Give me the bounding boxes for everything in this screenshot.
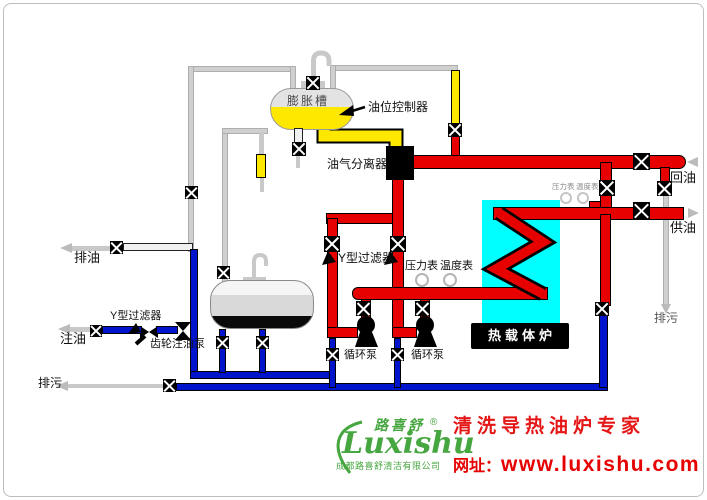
slogan: 清洗导热油炉专家	[453, 417, 645, 438]
pipe-discharge-header	[352, 287, 548, 300]
website-row: 网址： www.luxishu.com	[453, 452, 700, 477]
valve-furnace-drain	[595, 302, 609, 316]
valve-supply	[633, 202, 650, 219]
valve-y-filter-1	[324, 236, 340, 252]
pipe-expansion-riser-yellow	[451, 70, 460, 127]
pipe-supply-tee-cap	[589, 201, 601, 208]
valve-vent	[306, 76, 320, 90]
pipe-drain-oil	[123, 243, 193, 251]
valve-pump2-drain	[391, 348, 404, 361]
circulation-pump1-label: 循环泵	[344, 349, 377, 361]
sight-glass	[256, 154, 266, 178]
supply-oil-label: 供油	[670, 221, 696, 235]
temperature-gauge-small-icon	[577, 192, 589, 204]
pipe-pump2-suction-elbow	[392, 327, 417, 338]
pipe-fill-1	[102, 326, 142, 334]
storage-tank	[210, 280, 314, 329]
pressure-gauge-small-icon	[560, 192, 572, 204]
pipe-fill-2	[156, 326, 178, 334]
oil-gas-separator-block	[386, 146, 414, 180]
valve-pump2-discharge	[415, 301, 430, 316]
pipe-balance-top	[330, 65, 458, 71]
gear-fill-pump-label: 齿轮注油泵	[150, 338, 205, 350]
pressure-gauge-label: 压力表	[405, 260, 438, 272]
company-name: 成都路喜舒清洁有限公司	[336, 462, 441, 472]
pipe-overflow-top	[188, 66, 296, 72]
pipe-fill-vert	[190, 249, 198, 376]
pipe-furnace-drain-red	[600, 214, 611, 306]
pipe-blowdown-manifold	[176, 383, 608, 391]
pipe-pump1-suction-vert	[327, 218, 338, 328]
oil-level-controller-label: 油位控制器	[368, 101, 428, 114]
valve-expansion-riser	[448, 123, 462, 137]
return-oil-label: 回油	[670, 171, 696, 185]
valve-overflow	[185, 186, 198, 199]
pipe-gauge-stub-top	[259, 132, 264, 156]
pressure-gauge-icon	[415, 273, 429, 287]
pipe-furnace-drain-blue	[599, 314, 608, 388]
site-url: www.luxishu.com	[501, 453, 700, 477]
valve-main-return	[633, 153, 650, 170]
valve-blowdown-left	[163, 379, 176, 392]
valve-drain-oil	[110, 241, 123, 254]
oil-gas-separator-label: 油气分离器	[327, 158, 387, 171]
fill-oil-label: 注油	[60, 332, 86, 346]
blowdown-right-label: 排污	[654, 312, 678, 325]
expansion-drain-stub	[296, 156, 300, 168]
pipe-pump1-suction-elbow	[327, 327, 358, 338]
y-filter-fill-label: Y型过滤器	[110, 310, 161, 322]
pipe-blowdown-left-stub	[66, 384, 164, 388]
piping-diagram: 膨胀槽 油位控制器 油气分离器 Y型过滤器 压力表 温度表 压力表 温度表 循环…	[0, 0, 707, 500]
valve-tank-drain-1	[216, 336, 229, 349]
valve-fill-oil	[90, 325, 102, 337]
temperature-gauge-icon	[443, 273, 457, 287]
valve-bypass	[599, 180, 615, 196]
drain-oil-label: 排油	[74, 251, 100, 265]
valve-storage-inlet	[217, 266, 230, 279]
pipe-supply	[493, 207, 684, 220]
valve-pump1-discharge	[356, 301, 371, 316]
valve-y-filter-2	[390, 236, 406, 252]
blowdown-left-label: 排污	[38, 377, 62, 390]
valve-pump1-drain	[326, 348, 339, 361]
site-label: 网址：	[453, 452, 501, 476]
expansion-tank-label: 膨胀槽	[287, 95, 329, 108]
pipe-pump2-drain	[394, 338, 401, 388]
pressure-gauge-small-label: 压力表	[552, 183, 575, 191]
pipe-gauge-stub-bottom	[260, 178, 264, 192]
y-filter-main-label: Y型过滤器	[338, 252, 394, 265]
pipe-inner-loop-vert	[222, 128, 228, 284]
valve-tank-drain-2	[256, 336, 269, 349]
temperature-gauge-small-label: 温度表	[576, 183, 599, 191]
valve-expansion-drain	[292, 142, 306, 156]
temperature-gauge-label: 温度表	[440, 260, 473, 272]
pipe-pump1-drain	[329, 338, 336, 388]
furnace-label: 热载体炉	[488, 329, 556, 343]
circulation-pump2-label: 循环泵	[411, 349, 444, 361]
pipe-overflow-left-vert	[188, 66, 194, 252]
